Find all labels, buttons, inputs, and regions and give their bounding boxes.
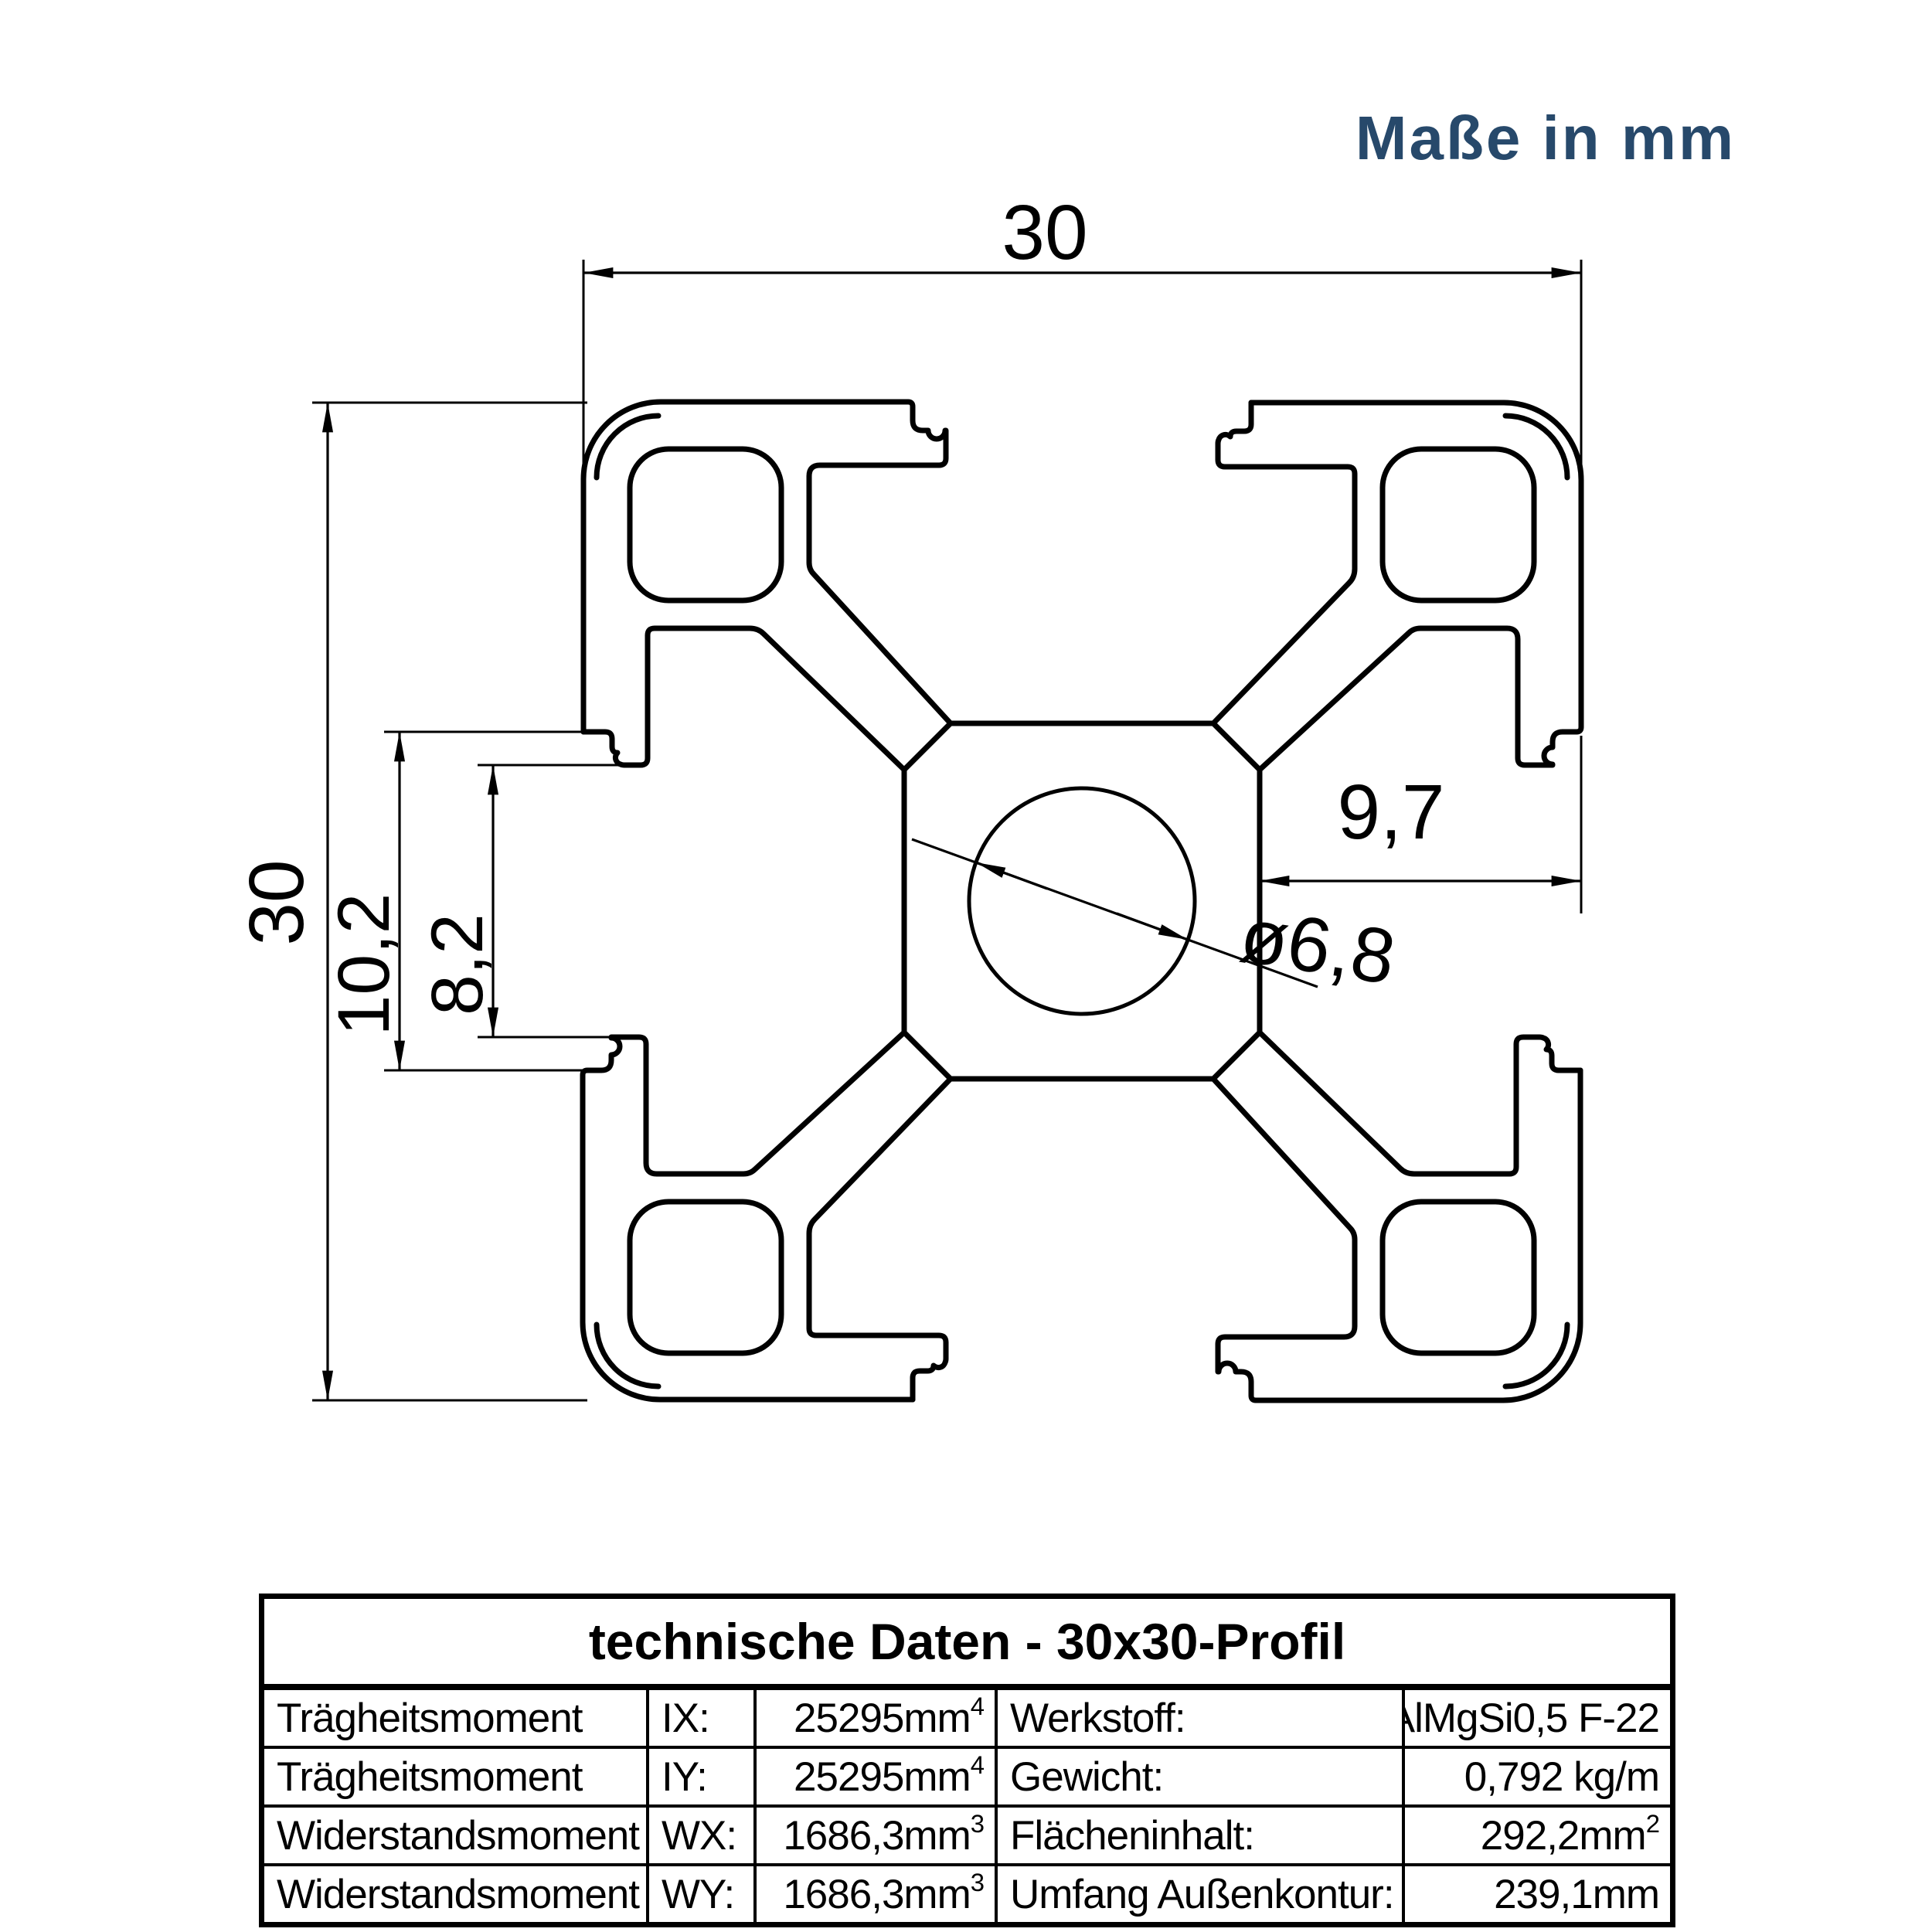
dimension-slot-outer: 10,2 (323, 732, 591, 1070)
table-row-4-property: Widerstandsmoment (264, 1866, 646, 1922)
table-row-4-value: 1686,3mm3 (757, 1866, 995, 1922)
dimension-height-label: 30 (233, 859, 320, 945)
dimension-bore: ø6,8 (912, 839, 1401, 1001)
dimension-core-depth-label: 9,7 (1337, 769, 1444, 855)
table-row-4-property2: Umfang Außenkontur: (998, 1866, 1402, 1922)
table-row-3-symbol: WX: (649, 1808, 753, 1863)
table-row-3-value: 1686,3mm3 (757, 1808, 995, 1863)
dimension-width: 30 (583, 189, 1581, 501)
table-row-3-property2: Flächeninhalt: (998, 1808, 1402, 1863)
dimension-slot-inner: 8,2 (417, 765, 618, 1037)
table-title: technische Daten - 30x30-Profil (264, 1599, 1670, 1690)
table-row-2-symbol: IY: (649, 1749, 753, 1804)
table-row-1-value2: AlMgSi0,5 F-22 (1405, 1690, 1670, 1746)
table-row-2-value: 25295mm4 (757, 1749, 995, 1804)
table-row-2-property: Trägheitsmoment (264, 1749, 646, 1804)
table-row-2-value2: 0,792 kg/m (1405, 1749, 1670, 1804)
table-row-1-property: Trägheitsmoment (264, 1690, 646, 1746)
table-body: Trägheitsmoment IX: 25295mm4 Werkstoff: … (264, 1690, 1670, 1922)
dimension-slot-inner-label: 8,2 (417, 913, 498, 1015)
dimension-height: 30 (233, 403, 587, 1400)
table-row-1-symbol: IX: (649, 1690, 753, 1746)
dimension-slot-outer-label: 10,2 (323, 893, 405, 1036)
units-note: Maße in mm (1355, 104, 1736, 172)
table-row-1-property2: Werkstoff: (998, 1690, 1402, 1746)
table-row-4-symbol: WY: (649, 1866, 753, 1922)
table-row-3-property: Widerstandsmoment (264, 1808, 646, 1863)
table-row-4-value2: 239,1mm (1405, 1866, 1670, 1922)
table-row-2-property2: Gewicht: (998, 1749, 1402, 1804)
page: { "note": "Maße in mm", "colors": { "acc… (0, 0, 1932, 1932)
table-row-1-value: 25295mm4 (757, 1690, 995, 1746)
technical-data-table: technische Daten - 30x30-Profil Trägheit… (259, 1594, 1675, 1927)
dimension-width-label: 30 (1002, 189, 1087, 276)
table-row-3-value2: 292,2mm2 (1405, 1808, 1670, 1863)
